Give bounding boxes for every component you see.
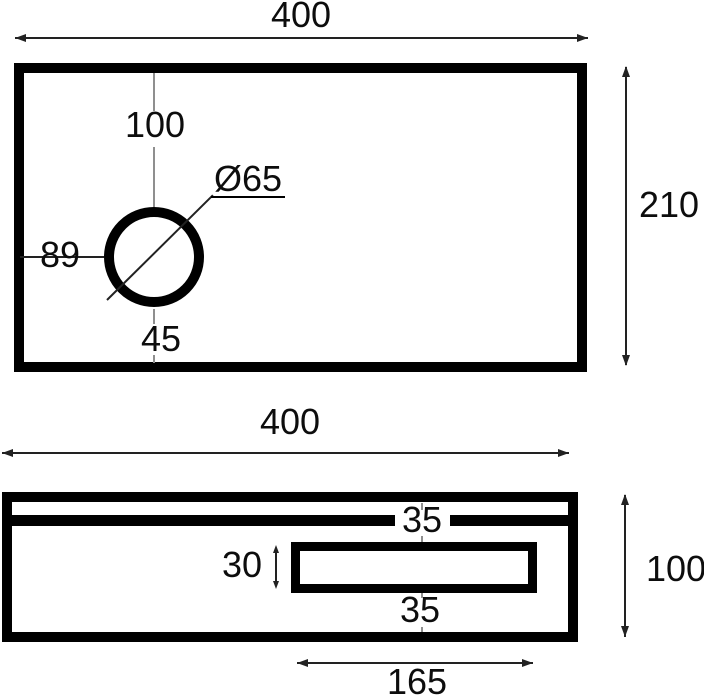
slot-vertical-centerline xyxy=(421,503,423,510)
top-view-width-dimension-line xyxy=(15,37,588,39)
hole-from-bottom-label: 45 xyxy=(131,320,191,358)
dim-arrow-down-icon xyxy=(622,355,630,366)
dim-arrow-left-icon xyxy=(297,659,308,667)
top-view-outline xyxy=(14,63,587,372)
hole-from-left-label: 89 xyxy=(30,236,90,274)
slot-height-dimension-line xyxy=(275,553,277,582)
top-view-width-label: 400 xyxy=(271,0,331,34)
hole-circle xyxy=(104,207,204,307)
side-view-height-label: 100 xyxy=(644,550,704,588)
dim-arrow-down-icon xyxy=(621,626,629,637)
dim-arrow-left-icon xyxy=(2,449,13,457)
top-view-height-dimension-line xyxy=(625,67,627,365)
side-view-width-dimension-line xyxy=(2,452,569,454)
hole-vertical-centerline xyxy=(153,147,155,207)
slot-outline xyxy=(291,542,537,593)
dim-arrow-down-icon xyxy=(273,581,279,589)
slot-height-label: 30 xyxy=(212,546,272,584)
slot-length-label: 165 xyxy=(387,663,447,697)
side-view-shelf-line xyxy=(12,515,395,526)
side-view-width-label: 400 xyxy=(258,403,322,441)
slot-lower-gap-label: 35 xyxy=(390,591,450,629)
hole-from-top-label: 100 xyxy=(125,106,185,144)
dim-arrow-left-icon xyxy=(15,34,26,42)
hole-diameter-label: Ø65 xyxy=(211,160,285,198)
side-view-shelf-line xyxy=(450,515,568,526)
slot-vertical-centerline xyxy=(421,536,423,542)
technical-drawing-canvas: 400 100 Ø65 89 45 210 400 35 30 35 xyxy=(0,0,704,697)
dim-arrow-right-icon xyxy=(577,34,588,42)
side-view-height-dimension-line xyxy=(624,495,626,637)
dim-arrow-up-icon xyxy=(273,545,279,553)
slot-vertical-centerline xyxy=(421,593,423,598)
dim-arrow-right-icon xyxy=(522,659,533,667)
dim-arrow-right-icon xyxy=(558,449,569,457)
slot-vertical-centerline xyxy=(421,627,423,632)
dim-arrow-up-icon xyxy=(621,494,629,505)
dim-arrow-up-icon xyxy=(622,66,630,77)
top-view-height-label: 210 xyxy=(637,186,701,224)
